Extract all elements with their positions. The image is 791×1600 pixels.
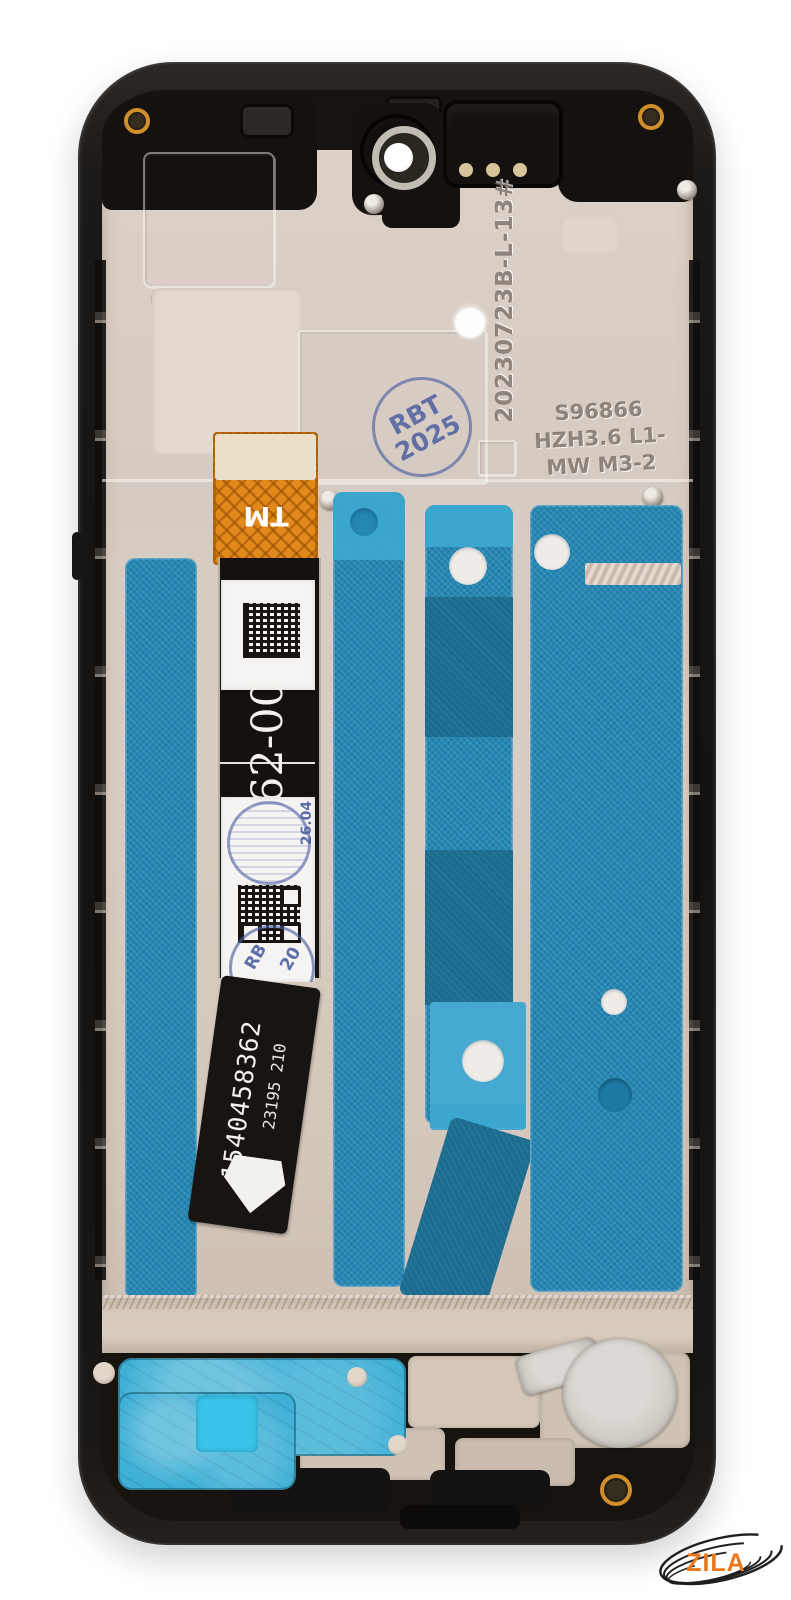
- screw-boss-bottom-left: [93, 1362, 115, 1384]
- strip-3-pull-tab: [425, 505, 513, 547]
- flex-stiffener: [215, 434, 316, 480]
- pale-shield-pad: [152, 288, 302, 456]
- bottom-black-gasket-right: [430, 1470, 550, 1510]
- adhesive-strip-2: [333, 492, 405, 1287]
- screw-below-camera: [364, 194, 384, 214]
- strip-4-droplet: [598, 1078, 632, 1112]
- strip-3-dark-segment-1: [425, 597, 513, 737]
- strip-2-droplet: [350, 508, 378, 536]
- gold-screw-hole-top-left: [124, 108, 150, 134]
- white-round-sticker: [454, 306, 486, 338]
- mold-codes: S96866 HZH3.6 L1- MW M3-2: [518, 394, 682, 483]
- flex-tm-marking: TM: [238, 495, 294, 531]
- flex-code-text: 62-00: [243, 680, 293, 804]
- gold-screw-hole-top-right: [638, 104, 664, 130]
- vibration-motor-foil: [563, 1338, 677, 1448]
- bottom-port-opening: [400, 1505, 520, 1529]
- adhesive-strip-right: [530, 505, 683, 1292]
- stamp-date: 26.04: [299, 797, 315, 849]
- plate-seam-highlight: [102, 479, 693, 482]
- frame-left-edge-notches: [95, 260, 106, 1280]
- speaker-contact-dot: [486, 163, 500, 177]
- product-photo: 20230723B-L-13# S96866 HZH3.6 L1- MW M3-…: [0, 0, 791, 1600]
- zila-logo: ZILA: [640, 1524, 791, 1600]
- adhesive-strip-left: [125, 558, 197, 1300]
- strip-3-hole-top: [449, 547, 487, 585]
- screw-mid-right: [643, 487, 663, 507]
- zila-logo-swirls: ZILA: [640, 1524, 791, 1600]
- batch-code-text: 23195 210: [259, 1042, 290, 1131]
- strip-3-dark-segment-2: [425, 850, 513, 1005]
- engraved-date-code: 20230723B-L-13#: [492, 200, 518, 400]
- stamp-date-text: 26.04: [299, 801, 315, 845]
- camera-lens-window: [384, 143, 413, 172]
- flex-tm-text: TM: [243, 500, 288, 531]
- strip-4-hole-mid: [601, 989, 627, 1015]
- engraved-date-code-text: 20230723B-L-13#: [492, 177, 518, 423]
- gold-screw-hole-bottom: [600, 1474, 632, 1506]
- screw-top-right: [677, 180, 697, 200]
- strip-3-hole-mid: [462, 1040, 504, 1082]
- frame-right-edge-notches: [689, 260, 700, 1280]
- qc-stamp-text: RBT 2025: [379, 388, 465, 467]
- top-housing-right: [558, 96, 693, 202]
- screw-boss-bottom-mid: [347, 1367, 367, 1387]
- bottom-edge-hatch: [102, 1295, 693, 1309]
- flex-code-62-00: 62-00: [243, 682, 293, 802]
- embossed-square-top-left: [143, 152, 275, 288]
- stamped-label: 26.04 RB 20: [221, 797, 315, 982]
- gasket-bright-square: [196, 1396, 258, 1452]
- foil-patch-right: [560, 215, 620, 255]
- qr-finder-top-right: [281, 887, 301, 907]
- zila-logo-text: ZILA: [686, 1549, 746, 1577]
- speaker-contact-dot: [459, 163, 473, 177]
- embossed-small-square: [478, 440, 516, 476]
- speaker-contact-dot: [513, 163, 527, 177]
- side-button-flex: [72, 532, 82, 580]
- sensor-slot: [240, 104, 294, 138]
- screw-boss-port: [388, 1435, 408, 1455]
- strip-4-hole-top: [534, 534, 570, 570]
- strip-4-hatched-notch: [585, 563, 681, 585]
- datamatrix-code: [243, 603, 300, 658]
